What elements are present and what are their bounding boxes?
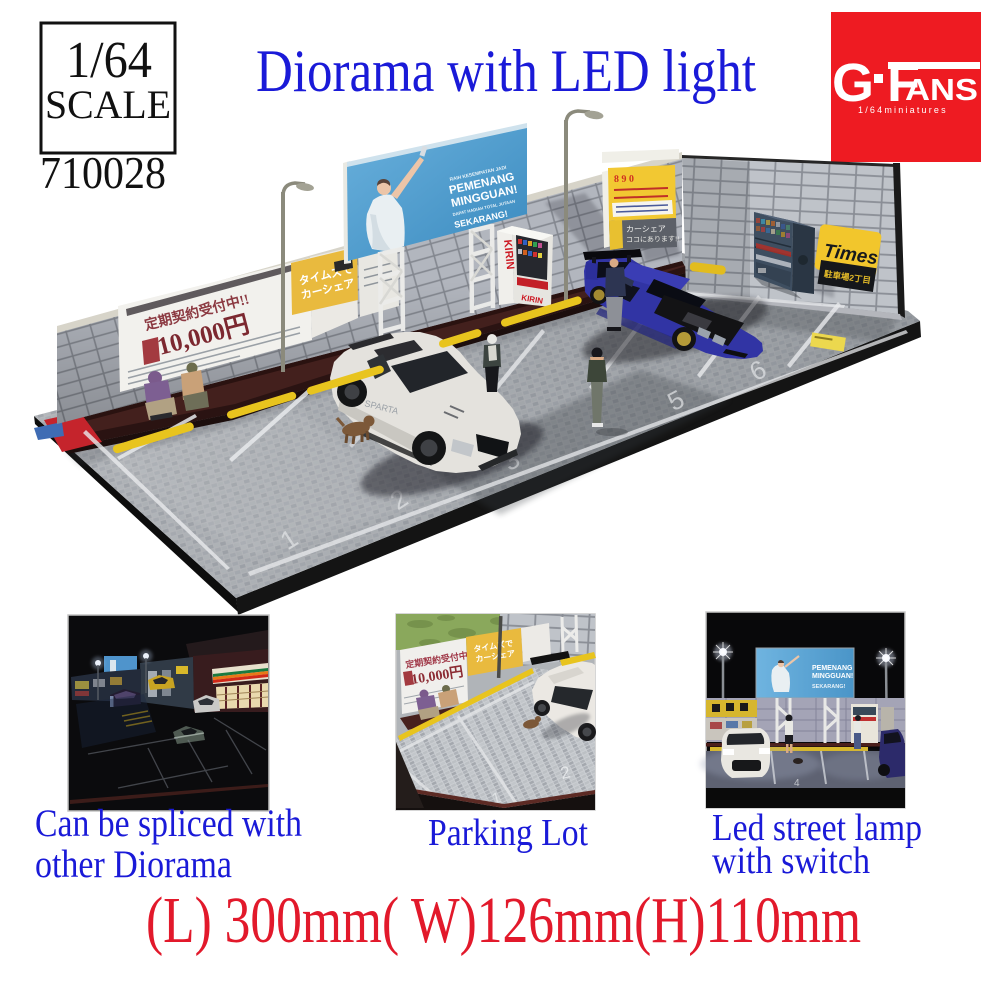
svg-text:PEMENANG: PEMENANG [812,665,853,672]
svg-text:with switch: with switch [712,840,870,882]
svg-text:(L) 300mm( W)126mm(H)110mm: (L) 300mm( W)126mm(H)110mm [146,884,861,957]
svg-text:1/64miniatures: 1/64miniatures [858,105,948,115]
svg-text:MINGGUAN!: MINGGUAN! [812,673,853,680]
svg-text:Parking Lot: Parking Lot [428,812,588,854]
svg-text:G: G [832,53,874,113]
svg-text:ココにあります!!: ココにあります!! [626,235,680,244]
svg-text:SCALE: SCALE [45,82,171,127]
svg-text:カーシェア: カーシェア [626,224,666,234]
svg-text:1/64: 1/64 [66,32,152,89]
svg-text:710028: 710028 [40,147,166,198]
svg-text:Diorama with LED light: Diorama with LED light [256,38,756,104]
svg-text:SEKARANG!: SEKARANG! [812,684,845,690]
svg-text:Can be spliced with: Can be spliced with [35,802,302,845]
svg-text:8 9 0: 8 9 0 [614,174,634,185]
svg-text:ANS: ANS [905,72,978,107]
svg-text:4: 4 [794,778,800,789]
svg-text:other Diorama: other Diorama [35,843,232,886]
